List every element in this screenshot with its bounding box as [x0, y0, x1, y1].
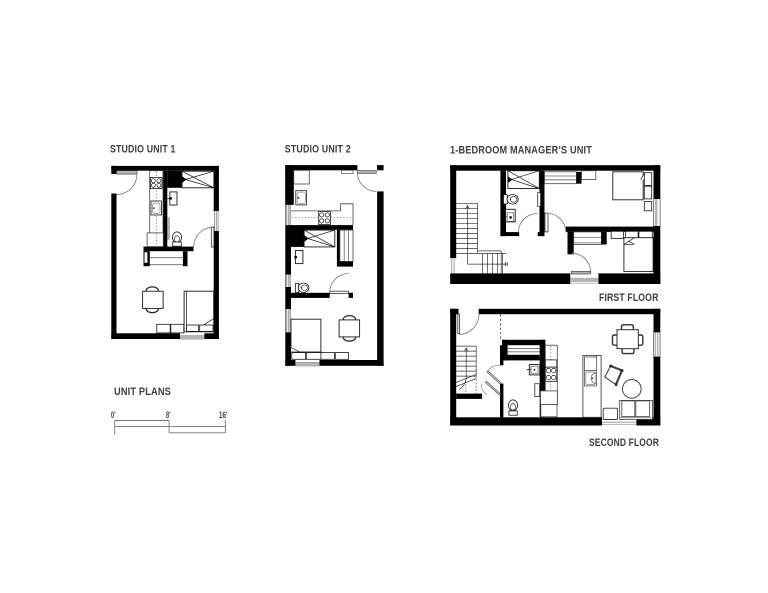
svg-text:UNIT PLANS: UNIT PLANS — [114, 386, 171, 398]
svg-text:8’: 8’ — [166, 410, 171, 420]
svg-text:16’: 16’ — [219, 410, 228, 420]
svg-text:SECOND FLOOR: SECOND FLOOR — [589, 437, 659, 449]
svg-text:STUDIO UNIT 2: STUDIO UNIT 2 — [285, 144, 351, 156]
svg-text:FIRST FLOOR: FIRST FLOOR — [599, 292, 659, 304]
svg-text:STUDIO UNIT 1: STUDIO UNIT 1 — [110, 144, 176, 156]
svg-text:1-BEDROOM MANAGER’S UNIT: 1-BEDROOM MANAGER’S UNIT — [450, 145, 592, 157]
svg-text:0’: 0’ — [111, 410, 116, 420]
